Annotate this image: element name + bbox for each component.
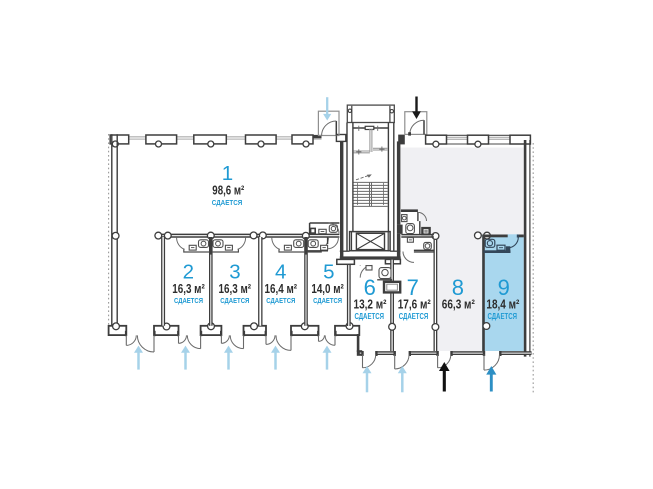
svg-text:5: 5 (323, 261, 334, 284)
svg-text:1: 1 (222, 162, 233, 185)
svg-text:7: 7 (407, 275, 419, 300)
svg-text:6: 6 (364, 275, 376, 300)
svg-text:66,3 м²: 66,3 м² (442, 297, 475, 311)
svg-text:СДАЕТСЯ: СДАЕТСЯ (354, 312, 384, 321)
svg-text:18,4 м²: 18,4 м² (486, 297, 519, 311)
svg-text:16,3 м²: 16,3 м² (172, 282, 205, 296)
svg-text:СДАЕТСЯ: СДАЕТСЯ (313, 296, 342, 305)
svg-text:13,2 м²: 13,2 м² (354, 297, 387, 311)
svg-text:17,6 м²: 17,6 м² (398, 297, 431, 311)
svg-text:14,0 м²: 14,0 м² (311, 282, 344, 296)
svg-text:2: 2 (183, 261, 194, 284)
svg-text:СДАЕТСЯ: СДАЕТСЯ (212, 198, 243, 207)
svg-text:3: 3 (229, 261, 240, 284)
svg-text:8: 8 (452, 275, 464, 300)
svg-text:16,4 м²: 16,4 м² (265, 282, 298, 296)
svg-text:СДАЕТСЯ: СДАЕТСЯ (399, 312, 429, 321)
svg-text:16,3 м²: 16,3 м² (219, 282, 252, 296)
svg-text:4: 4 (275, 261, 286, 284)
svg-text:98,6 м²: 98,6 м² (212, 183, 244, 197)
svg-text:9: 9 (498, 275, 510, 300)
svg-text:СДАЕТСЯ: СДАЕТСЯ (174, 296, 203, 305)
svg-text:СДАЕТСЯ: СДАЕТСЯ (266, 296, 295, 305)
svg-text:СДАЕТСЯ: СДАЕТСЯ (220, 296, 249, 305)
svg-text:СДАЕТСЯ: СДАЕТСЯ (487, 312, 517, 321)
